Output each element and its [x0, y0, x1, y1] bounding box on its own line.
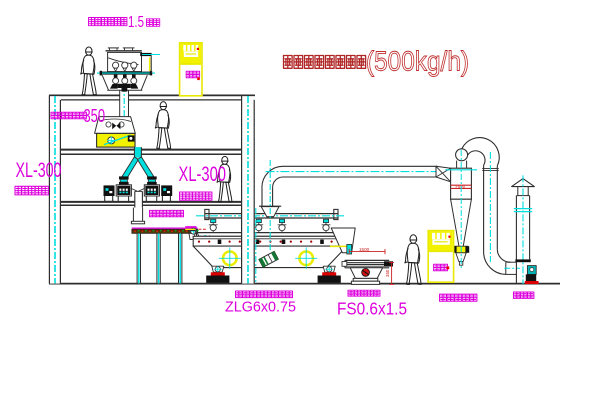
svg-text:(500kg/h): (500kg/h) [366, 46, 469, 77]
svg-text:F600: F600 [456, 184, 466, 189]
svg-text:FS0.6x1.5: FS0.6x1.5 [337, 299, 407, 319]
svg-text:ZLG6x0.75: ZLG6x0.75 [225, 299, 296, 316]
svg-text:350: 350 [84, 106, 106, 126]
svg-text:1500: 1500 [359, 247, 370, 252]
svg-text:350: 350 [385, 269, 390, 277]
svg-text:XL-300: XL-300 [16, 158, 62, 182]
svg-text:1.5: 1.5 [128, 14, 144, 31]
svg-text:XL-300: XL-300 [179, 163, 227, 186]
